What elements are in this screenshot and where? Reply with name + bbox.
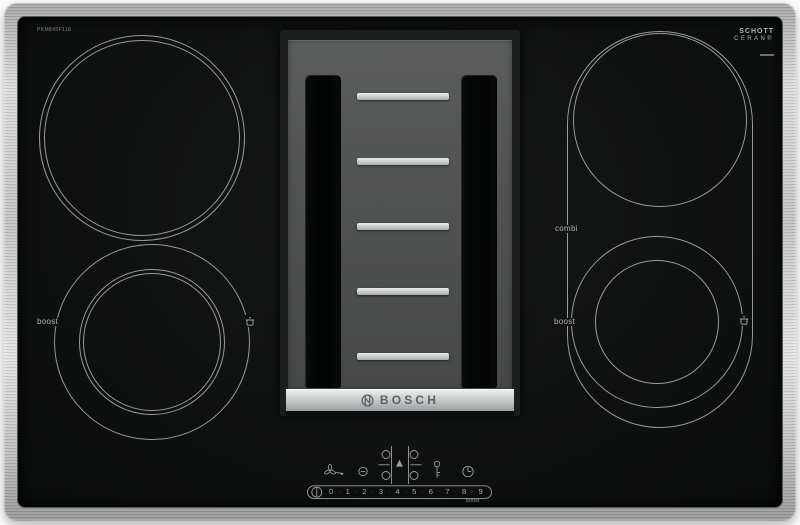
- vent-level-icon[interactable]: [359, 467, 367, 475]
- power-icon[interactable]: [312, 487, 322, 497]
- zone-ring-top-left-inner: [44, 40, 240, 236]
- timer-icon[interactable]: [463, 466, 473, 476]
- vent-slot-right: [461, 75, 497, 388]
- power-level-0[interactable]: 0: [329, 488, 333, 496]
- vent-grill-bar: [357, 223, 449, 230]
- power-level-8[interactable]: 8: [462, 488, 466, 496]
- child-lock-icon[interactable]: [434, 461, 440, 477]
- power-level-5[interactable]: 5: [412, 488, 416, 496]
- level-separator: ·: [338, 488, 340, 496]
- level-separator: ·: [421, 488, 423, 496]
- slider-boost-label[interactable]: boost: [466, 498, 480, 504]
- level-separator: ·: [405, 488, 407, 496]
- boost-label-right: boost: [552, 318, 577, 326]
- vent-grill-bar: [357, 158, 449, 165]
- zone-select-icon[interactable]: [379, 446, 422, 484]
- schott-sub-mark: [760, 54, 774, 56]
- pan-marker-icon: [738, 313, 750, 327]
- model-label: PKM845F11E: [37, 27, 72, 33]
- power-level-7[interactable]: 7: [445, 488, 449, 496]
- level-separator: ·: [438, 488, 440, 496]
- power-level-6[interactable]: 6: [429, 488, 433, 496]
- zone-ring-bottom-left-inner: [83, 273, 221, 411]
- power-level-9[interactable]: 9: [479, 488, 483, 496]
- power-level-1[interactable]: 1: [346, 488, 350, 496]
- vent-module-base: [286, 411, 514, 416]
- zone-ring-bottom-right-inner: [595, 260, 719, 384]
- level-separator: ·: [355, 488, 357, 496]
- vent-grill-bar: [357, 93, 449, 100]
- power-level-2[interactable]: 2: [362, 488, 366, 496]
- level-separator: ·: [455, 488, 457, 496]
- power-level-3[interactable]: 3: [379, 488, 383, 496]
- vent-slot-left: [305, 75, 341, 388]
- level-separator: ·: [372, 488, 374, 496]
- bosch-wordmark: BOSCH: [380, 394, 439, 406]
- bosch-anchor-icon: [361, 394, 374, 407]
- vent-grill-bar: [357, 353, 449, 360]
- schott-line2: CERAN®: [720, 36, 774, 43]
- power-level-row[interactable]: 0·1·2·3·4·5·6·7·8·9: [329, 486, 483, 498]
- level-separator: ·: [388, 488, 390, 496]
- pan-marker-icon: [244, 314, 256, 328]
- boost-label-left: boost: [35, 318, 60, 326]
- brand-strip: BOSCH: [286, 389, 514, 411]
- power-level-4[interactable]: 4: [396, 488, 400, 496]
- vent-grill-bar: [357, 288, 449, 295]
- product-photo: boost combi boost PKM845F11E SCHOTT CERA…: [0, 0, 800, 525]
- fan-icon[interactable]: [324, 464, 344, 475]
- combi-label: combi: [553, 225, 580, 233]
- level-separator: ·: [471, 488, 473, 496]
- schott-ceran-logo: SCHOTT CERAN®: [720, 28, 774, 61]
- schott-line1: SCHOTT: [720, 28, 774, 36]
